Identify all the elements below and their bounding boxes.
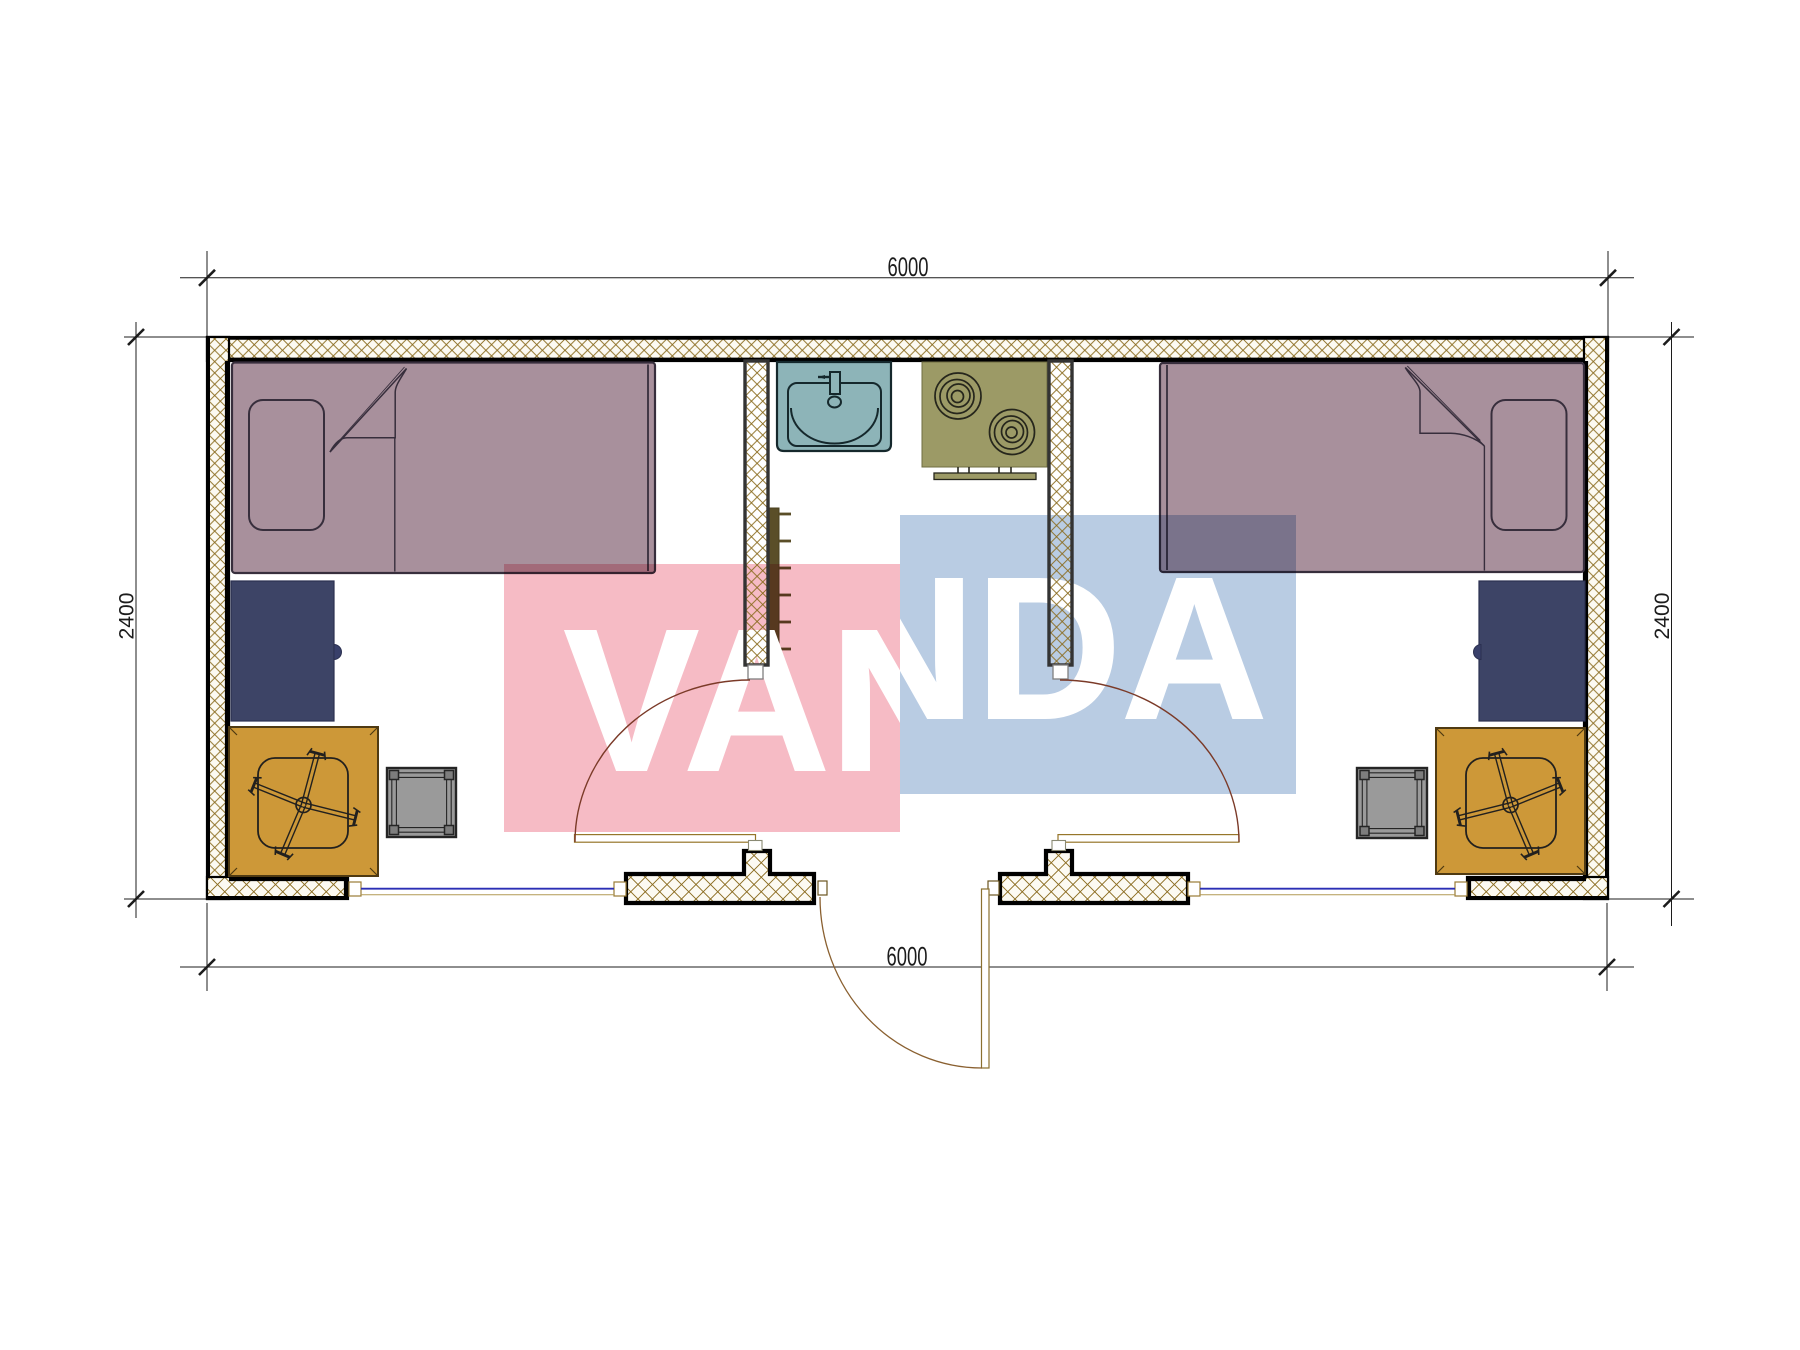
svg-text:6000: 6000 bbox=[888, 252, 929, 282]
svg-text:2400: 2400 bbox=[116, 593, 139, 640]
svg-text:6000: 6000 bbox=[887, 942, 928, 972]
svg-text:2400: 2400 bbox=[1651, 593, 1674, 640]
